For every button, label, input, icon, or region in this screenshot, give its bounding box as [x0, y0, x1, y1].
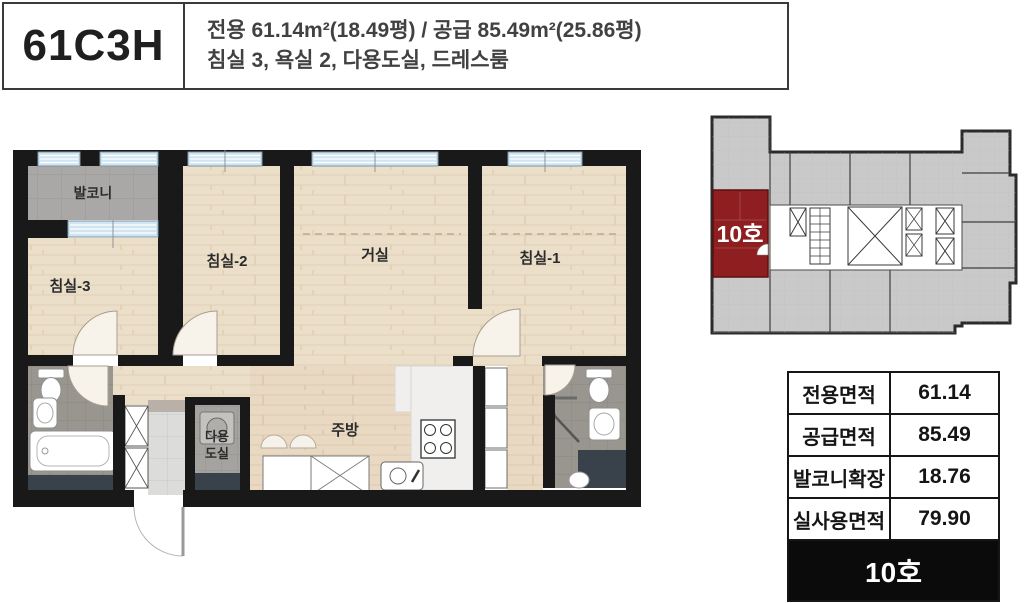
header: 61C3H 전용 61.14m²(18.49평) / 공급 85.49m²(25… [2, 2, 789, 90]
row-value: 79.90 [891, 499, 998, 539]
bedroom2-label: 침실-2 [207, 253, 248, 270]
living-floor [294, 166, 468, 366]
dressroom-floor [507, 365, 543, 490]
unit-area-spec: 전용 61.14m²(18.49평) / 공급 85.49m²(25.86평) [207, 16, 787, 46]
entry-door-swing [134, 507, 183, 556]
wardrobe-strip [485, 368, 507, 488]
balcony-label: 발코니 [74, 185, 113, 201]
highlighted-unit: 10호 [713, 190, 768, 277]
living-label: 거실 [361, 247, 389, 264]
table-row: 발코니확장 18.76 [789, 457, 998, 499]
kitchen-sink [381, 462, 423, 490]
row-value: 85.49 [891, 415, 998, 455]
entry-closet [125, 406, 148, 488]
unit-code-cell: 61C3H [4, 4, 185, 88]
floorplan-sheet: 61C3H 전용 61.14m²(18.49평) / 공급 85.49m²(25… [0, 0, 1026, 603]
stove [421, 420, 455, 458]
row-value: 18.76 [891, 457, 998, 497]
table-row: 전용면적 61.14 [789, 373, 998, 415]
area-table: 전용면적 61.14 공급면적 85.49 발코니확장 18.76 실사용면적 … [787, 371, 1000, 602]
shaft [28, 475, 113, 490]
kitchen-cabinets [263, 456, 369, 495]
table-row: 실사용면적 79.90 [789, 499, 998, 541]
floor-plan-drawing: 발코니 침실-3 침실-2 거실 침실-1 주방 다용 도실 [13, 150, 641, 562]
row-value: 61.14 [891, 373, 998, 413]
entry-floor [148, 405, 185, 495]
kitchen-label: 주방 [331, 421, 359, 439]
utility-label-line1: 다용 [205, 429, 229, 444]
highlighted-unit-label: 10호 [717, 221, 764, 247]
bathtub [30, 431, 116, 471]
bedroom1-label: 침실-1 [520, 250, 561, 267]
row-label: 전용면적 [789, 373, 891, 413]
building-key-plan: 10호 [700, 108, 1018, 340]
row-label: 발코니확장 [789, 457, 891, 497]
sink-left [33, 398, 57, 428]
bedroom3-label: 침실-3 [50, 278, 91, 295]
sink-right [589, 408, 620, 440]
row-label: 공급면적 [789, 415, 891, 455]
unit-spec-cell: 전용 61.14m²(18.49평) / 공급 85.49m²(25.86평) … [185, 4, 787, 88]
unit-room-spec: 침실 3, 욕실 2, 다용도실, 드레스룸 [207, 46, 787, 76]
table-row: 공급면적 85.49 [789, 415, 998, 457]
unit-number-footer: 10호 [789, 541, 998, 600]
basin [569, 472, 589, 488]
unit-code: 61C3H [23, 21, 165, 71]
utility-label-line2: 도실 [205, 446, 229, 461]
row-label: 실사용면적 [789, 499, 891, 539]
